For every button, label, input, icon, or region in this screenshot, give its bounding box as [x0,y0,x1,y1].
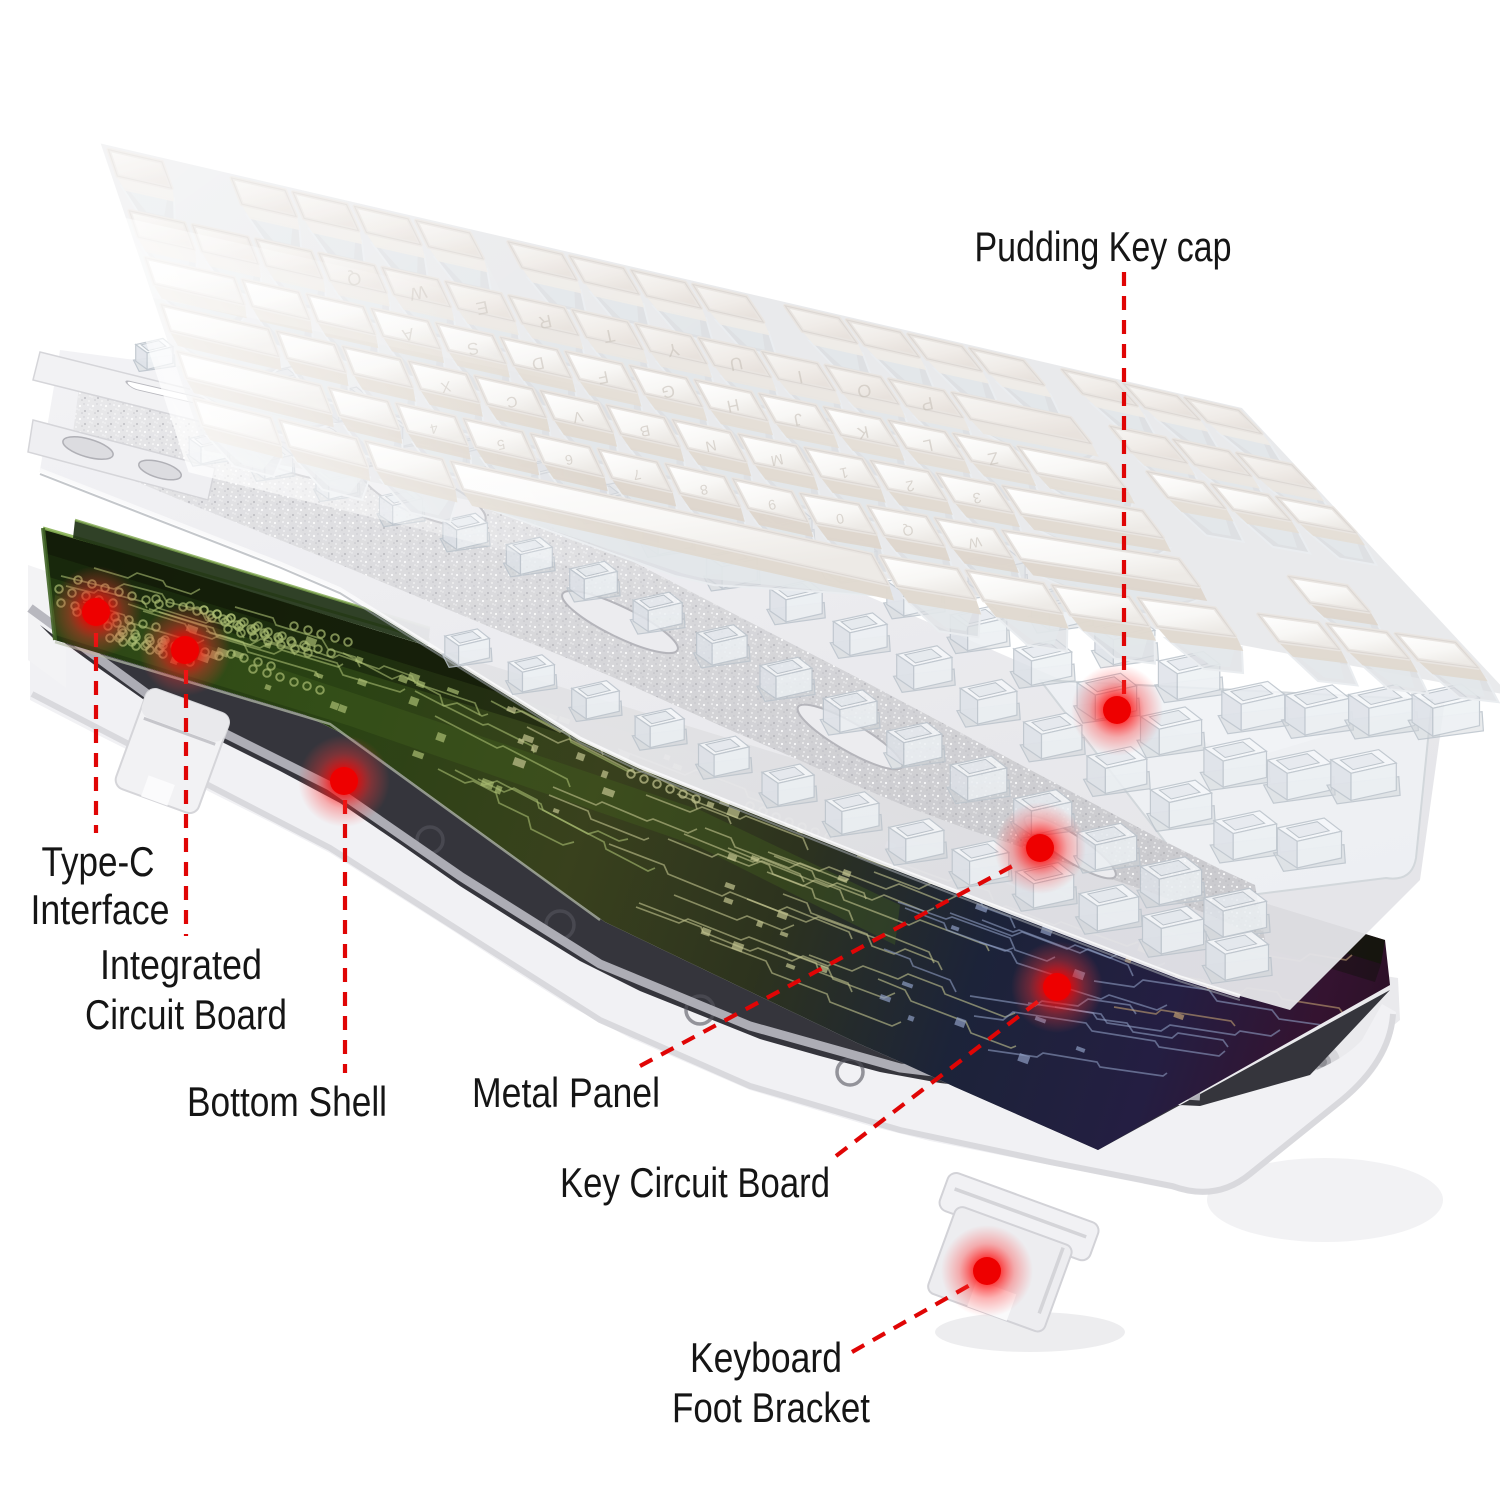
svg-text:Interface: Interface [31,886,170,933]
svg-text:Foot Bracket: Foot Bracket [672,1384,870,1431]
svg-text:Bottom Shell: Bottom Shell [187,1078,387,1125]
svg-text:Key Circuit Board: Key Circuit Board [560,1159,830,1206]
svg-text:Type-C: Type-C [42,838,155,885]
svg-text:Pudding Key cap: Pudding Key cap [975,223,1232,270]
svg-text:Integrated: Integrated [100,941,262,988]
svg-text:Circuit Board: Circuit Board [85,991,287,1038]
svg-text:Keyboard: Keyboard [690,1334,842,1381]
svg-text:Metal Panel: Metal Panel [472,1069,660,1116]
